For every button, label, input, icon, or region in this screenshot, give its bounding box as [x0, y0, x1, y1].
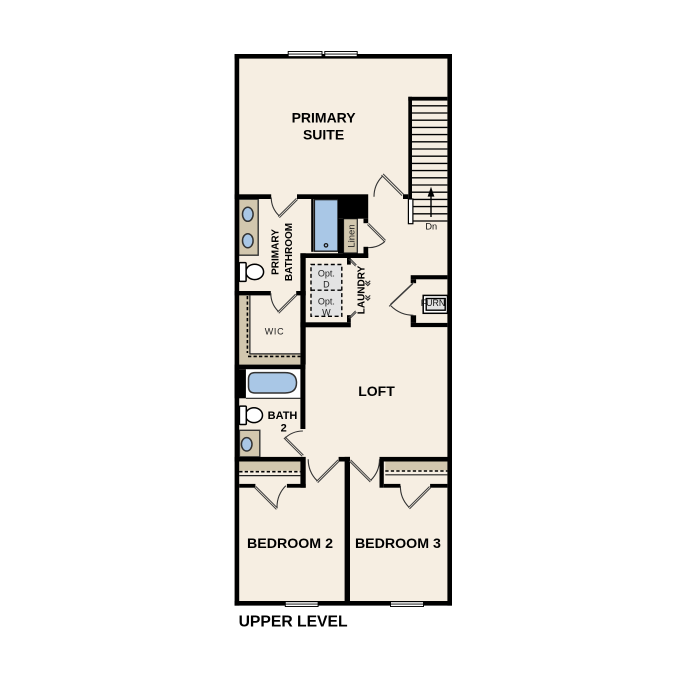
svg-text:UPPER LEVEL: UPPER LEVEL — [239, 614, 348, 631]
svg-text:LOFT: LOFT — [358, 383, 395, 399]
svg-text:2: 2 — [281, 423, 287, 435]
svg-text:SUITE: SUITE — [303, 126, 344, 142]
svg-text:PRIMARY: PRIMARY — [292, 109, 357, 125]
svg-text:Opt.: Opt. — [318, 296, 335, 306]
svg-text:Opt.: Opt. — [318, 268, 335, 278]
svg-text:BEDROOM 3: BEDROOM 3 — [355, 536, 441, 552]
svg-text:D: D — [323, 280, 330, 290]
svg-text:BATH: BATH — [268, 410, 298, 422]
svg-text:Dn: Dn — [425, 221, 437, 231]
svg-text:LAUNDRY: LAUNDRY — [356, 265, 367, 314]
svg-text:BATHROOM: BATHROOM — [284, 223, 295, 281]
svg-text:W: W — [322, 308, 331, 318]
svg-text:FURN: FURN — [421, 298, 445, 308]
svg-text:Linen: Linen — [346, 224, 357, 247]
svg-text:PRIMARY: PRIMARY — [270, 229, 281, 275]
svg-text:BEDROOM 2: BEDROOM 2 — [247, 536, 333, 552]
svg-text:WIC: WIC — [265, 327, 285, 337]
